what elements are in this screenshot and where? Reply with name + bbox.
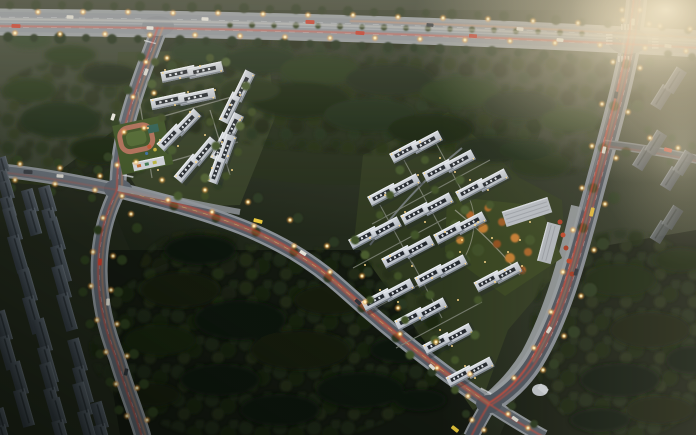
screenshot-root bbox=[0, 0, 696, 435]
aerial-site-rendering bbox=[0, 0, 696, 435]
atmosphere-haze bbox=[0, 0, 696, 435]
vignette bbox=[0, 0, 696, 435]
